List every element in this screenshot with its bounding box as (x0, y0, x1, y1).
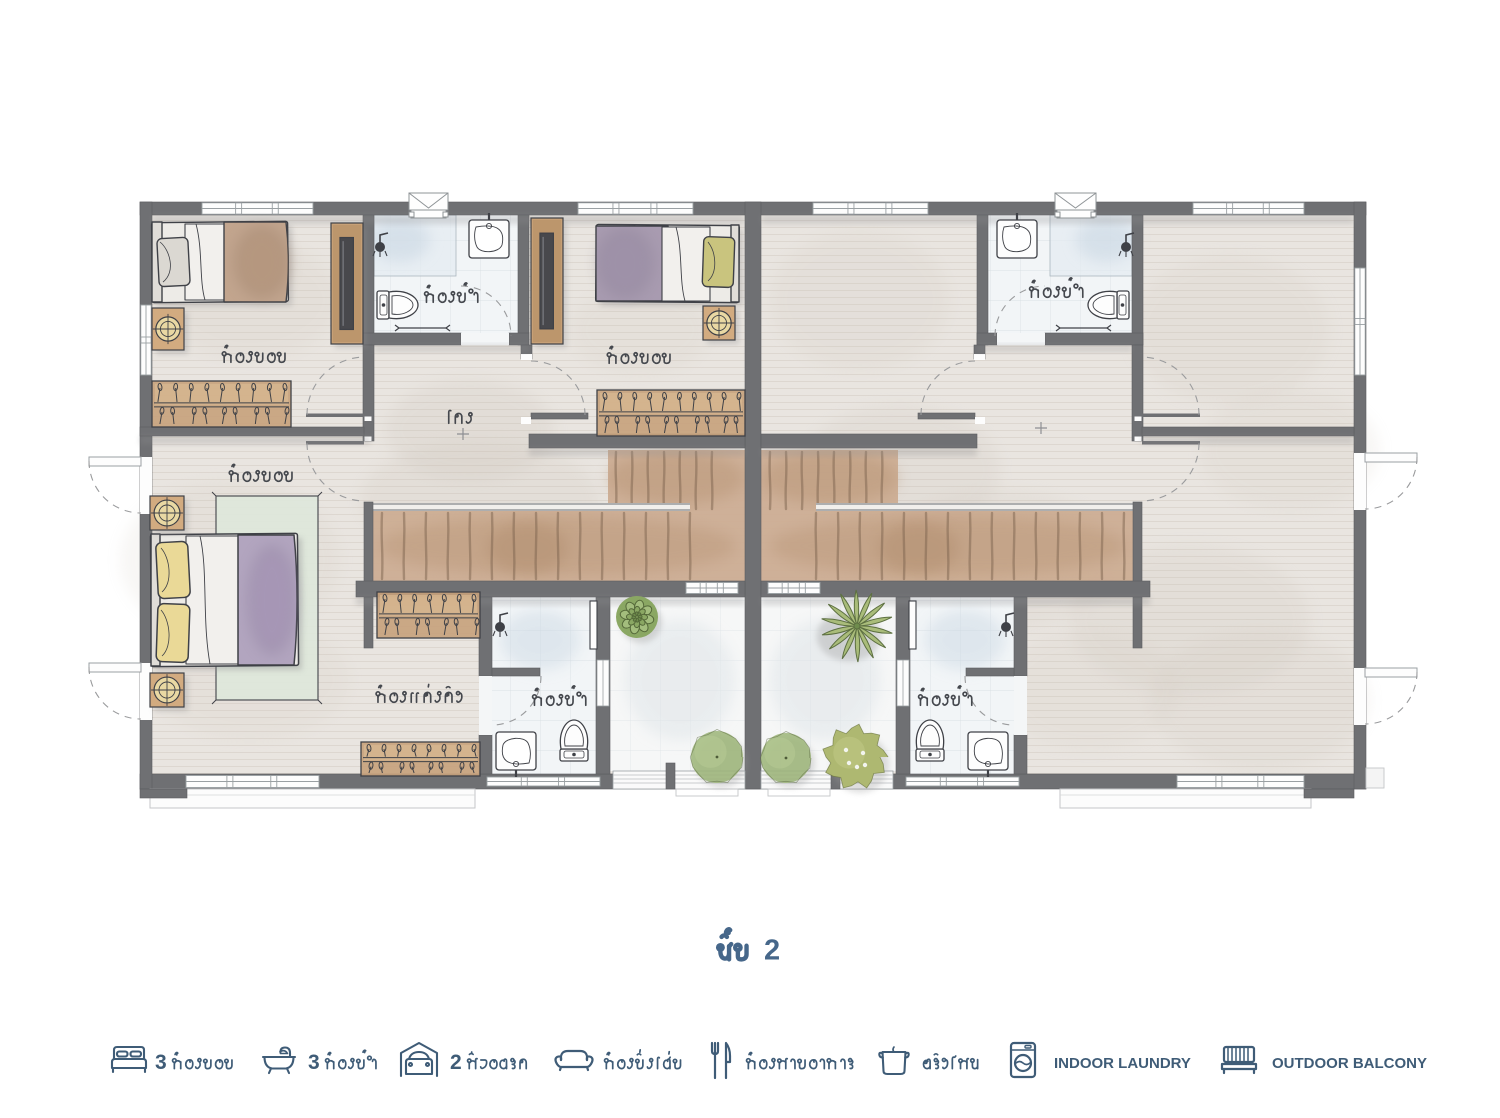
svg-text:2: 2 (764, 935, 780, 967)
svg-text:INDOOR LAUNDRY: INDOOR LAUNDRY (1054, 1055, 1191, 1072)
svg-text:OUTDOOR BALCONY: OUTDOOR BALCONY (1272, 1055, 1427, 1072)
svg-text:2: 2 (450, 1051, 462, 1074)
svg-text:3: 3 (308, 1051, 320, 1074)
svg-text:3: 3 (155, 1051, 167, 1074)
